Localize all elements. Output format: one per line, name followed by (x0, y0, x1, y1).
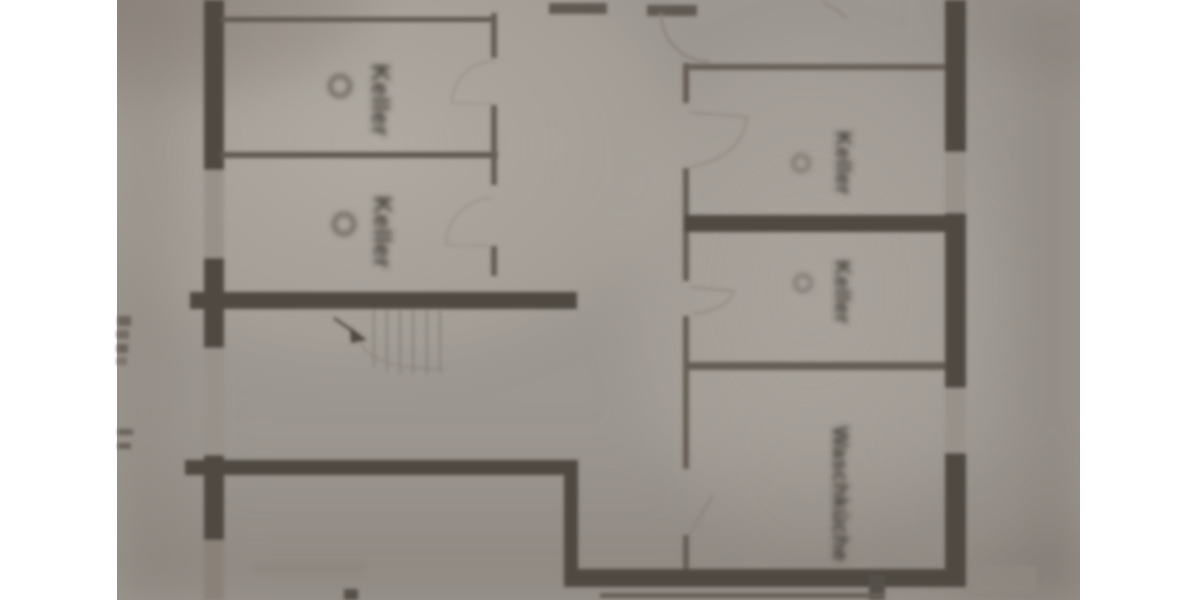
svg-text:Keller: Keller (830, 260, 855, 324)
svg-text:Keller: Keller (368, 196, 396, 268)
svg-text:Keller: Keller (366, 64, 394, 136)
svg-text:Keller: Keller (831, 131, 856, 195)
svg-text:Waschküche: Waschküche (828, 426, 853, 562)
